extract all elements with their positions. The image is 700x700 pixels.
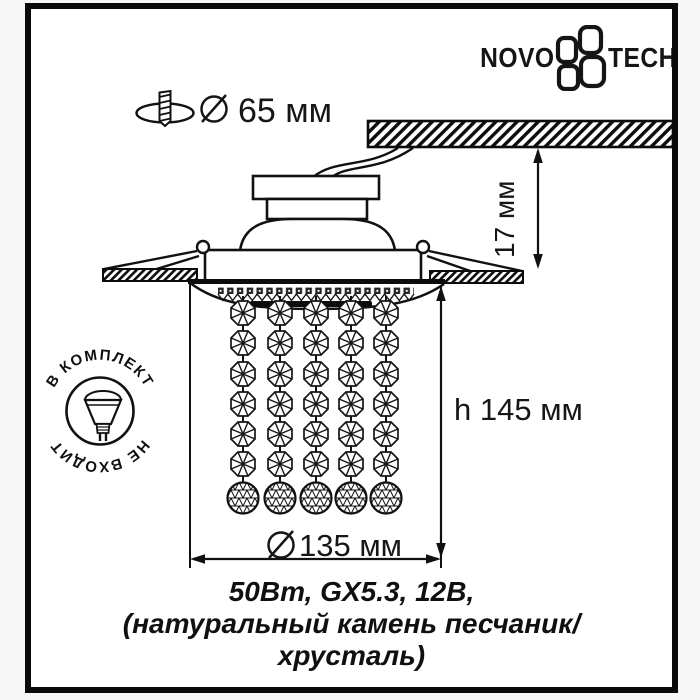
diameter-label: 135 мм xyxy=(299,528,402,563)
diameter-symbol xyxy=(269,531,294,558)
spec-caption: 50Вт, GX5.3, 12В, (натуральный камень пе… xyxy=(33,576,670,672)
dimension-diameter-135mm: 135 мм xyxy=(190,528,441,564)
arrow-down-icon xyxy=(533,254,543,269)
clip-pivot-left xyxy=(197,241,209,253)
spec-line-material-2: хрусталь) xyxy=(33,640,670,672)
ceiling-lip-left xyxy=(103,269,197,281)
depth-label: 17 мм xyxy=(489,181,520,258)
brand-logo: NOVO TECH xyxy=(470,24,687,92)
novotech-clover-icon xyxy=(555,25,607,91)
dimension-depth-17mm: 17 мм xyxy=(489,148,543,269)
drill-cutout-icon xyxy=(137,91,194,126)
spec-line-material-1: (натуральный камень песчаник/ xyxy=(33,608,670,640)
clip-pivot-right xyxy=(417,241,429,253)
arrow-left-icon xyxy=(190,554,205,564)
supply-wires xyxy=(313,148,413,177)
terminal-box xyxy=(253,176,379,199)
spec-line-wattage: 50Вт, GX5.3, 12В, xyxy=(33,576,670,608)
crystal-octagons xyxy=(231,301,398,476)
ceiling-section xyxy=(368,121,673,147)
cutout-label: 65 мм xyxy=(238,92,332,130)
height-label: h 145 мм xyxy=(454,392,583,427)
lamp-housing xyxy=(240,176,395,251)
brand-wordmark-right: TECH xyxy=(608,42,677,74)
cutout-note: 65 мм xyxy=(137,91,333,130)
arrow-right-icon xyxy=(426,554,441,564)
trim-flange xyxy=(188,279,445,284)
crystal-balls xyxy=(228,483,402,514)
not-included-stamp: В КОМПЛЕКТ НЕ ВХОДИТ xyxy=(43,347,157,476)
brand-wordmark-left: NOVO xyxy=(480,42,554,74)
arrow-up-icon xyxy=(533,148,543,163)
crystal-strings xyxy=(228,296,402,514)
housing-bell xyxy=(240,219,395,251)
diameter-symbol xyxy=(202,95,227,122)
housing-neck xyxy=(267,199,367,219)
arrow-down-icon xyxy=(436,543,446,558)
